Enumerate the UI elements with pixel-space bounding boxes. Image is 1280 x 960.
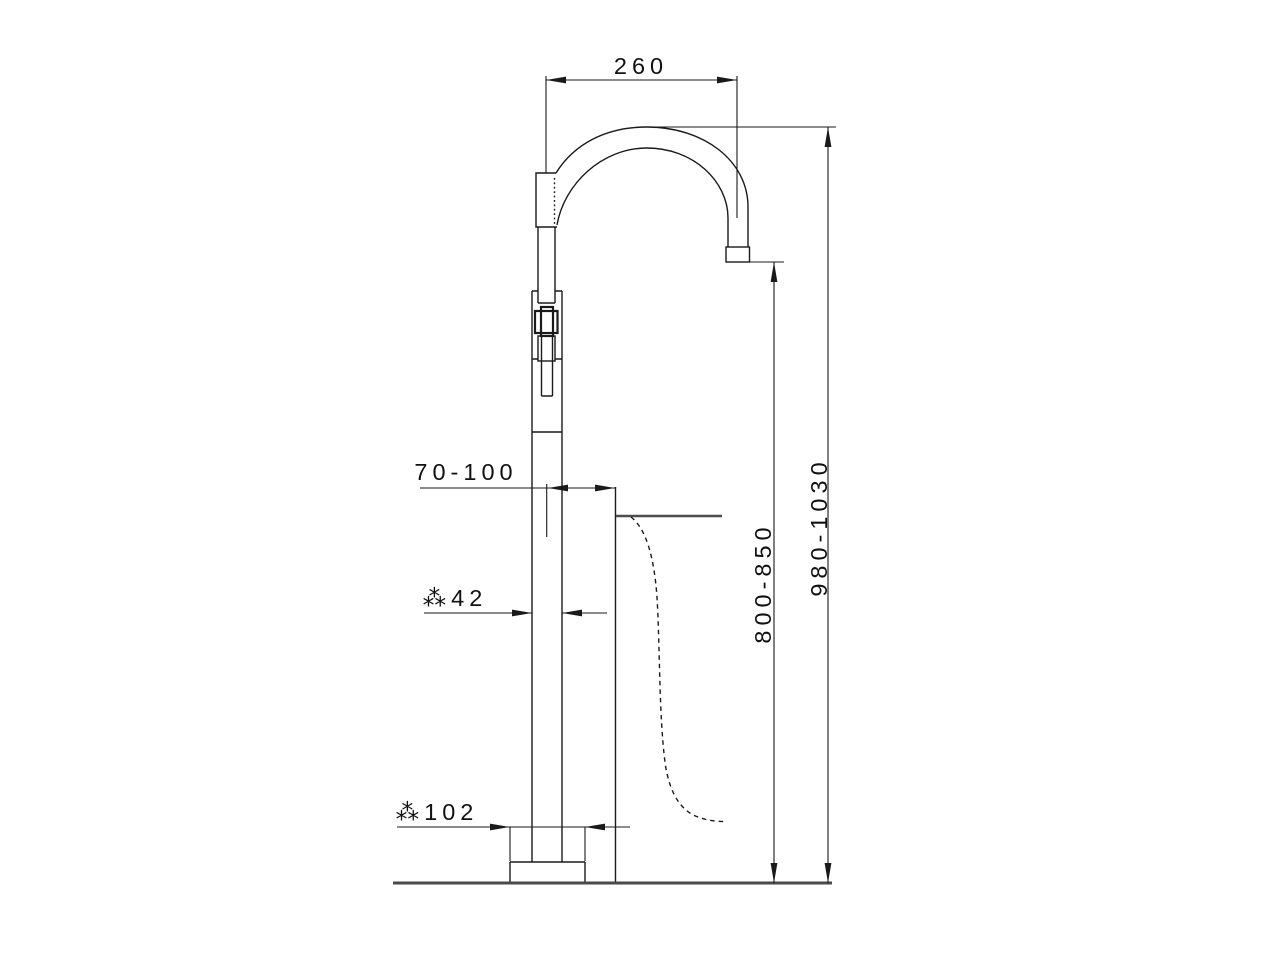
arrowhead-left — [548, 485, 568, 492]
spout-inner-arc — [557, 148, 728, 247]
handle-wings — [535, 311, 558, 333]
temperature-handle — [535, 307, 558, 396]
arrowhead-right — [490, 824, 510, 831]
dim-spout-outlet-height: 800-850 — [750, 262, 785, 883]
arrowhead-up — [771, 262, 778, 282]
arrowhead-left — [562, 610, 582, 617]
bathtub — [616, 487, 725, 883]
dim-label-base-diameter: ⁂102 — [396, 799, 479, 825]
faucet-dimension-drawing: 260 980-1030 800-850 70-100 ⁂42 — [0, 0, 1280, 960]
arrowhead-left — [546, 77, 566, 84]
dim-base-diameter: ⁂102 — [396, 799, 630, 861]
dim-overall-height: 980-1030 — [655, 127, 836, 883]
faucet-body — [510, 127, 750, 883]
arrowhead-left — [585, 824, 605, 831]
arrowhead-down — [771, 863, 778, 883]
spout-outlet — [726, 247, 750, 262]
dim-axis-to-tub-edge: 70-100 — [414, 459, 615, 537]
hand-shower-handle-tube — [538, 227, 555, 303]
arrowhead-right — [717, 77, 737, 84]
dim-label-overall-height: 980-1030 — [806, 457, 832, 596]
dim-column-diameter: ⁂42 — [423, 585, 607, 616]
base-plate — [510, 862, 585, 883]
dim-label-spout-projection: 260 — [614, 53, 668, 79]
handle-stem — [542, 336, 553, 396]
gooseneck-spout — [556, 127, 750, 262]
mixer-column-sides — [532, 291, 562, 862]
arrowhead-right — [512, 610, 532, 617]
technical-drawing-canvas: 260 980-1030 800-850 70-100 ⁂42 — [0, 0, 1280, 960]
dim-spout-projection: 260 — [546, 53, 737, 218]
dim-label-column-diameter: ⁂42 — [423, 585, 488, 611]
arrowhead-up — [825, 127, 832, 147]
dim-label-spout-outlet-height: 800-850 — [750, 522, 776, 643]
arrowhead-down — [825, 863, 832, 883]
dim-label-axis-to-tub-edge: 70-100 — [414, 459, 517, 485]
tub-profile-dashed — [631, 517, 724, 822]
arrowhead-right — [595, 485, 615, 492]
